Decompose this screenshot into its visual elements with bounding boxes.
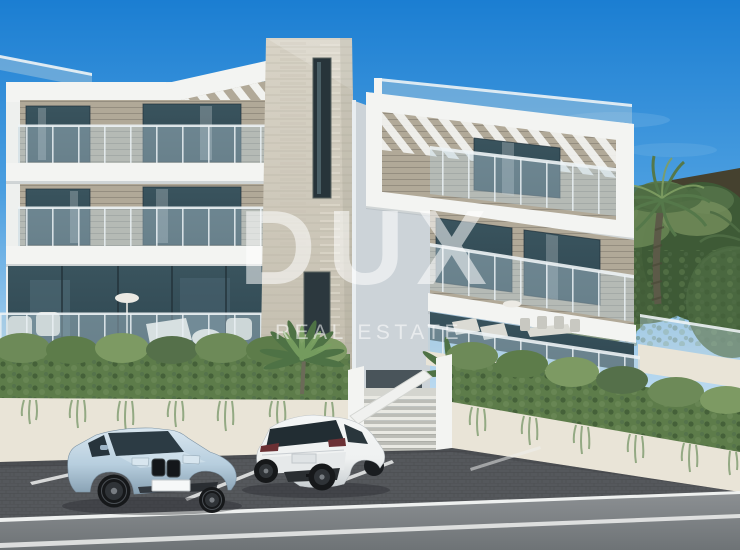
dining-chair [520, 318, 530, 331]
floor-lamp [115, 293, 139, 303]
render-canvas: DUX REAL ESTATE [0, 0, 740, 550]
floor-slab [6, 163, 270, 183]
middle-floor [18, 184, 270, 248]
left-building [0, 55, 272, 363]
wheel [199, 487, 225, 513]
headlight [183, 455, 200, 464]
watermark: DUX REAL ESTATE [239, 189, 499, 344]
tower-window-tall [313, 58, 331, 198]
wheel [98, 475, 131, 508]
license-plate [152, 480, 190, 491]
watermark-tagline: REAL ESTATE [275, 321, 463, 344]
wheel [309, 464, 336, 491]
watermark-brand: DUX [239, 189, 499, 307]
dining-chair [570, 319, 580, 332]
top-floor [18, 100, 270, 166]
dining-chair [537, 316, 547, 329]
floor-lamp [503, 301, 521, 308]
headlight [132, 458, 149, 466]
floor-slab [6, 246, 270, 266]
dining-chair [554, 316, 564, 329]
license-plate [292, 454, 316, 463]
stair-parapet-right [436, 354, 452, 452]
architectural-rendering: DUX REAL ESTATE [0, 0, 740, 550]
side-mirror [100, 445, 108, 450]
kidney-grille [167, 460, 180, 477]
wheel [254, 459, 278, 483]
kidney-grille [152, 459, 165, 476]
